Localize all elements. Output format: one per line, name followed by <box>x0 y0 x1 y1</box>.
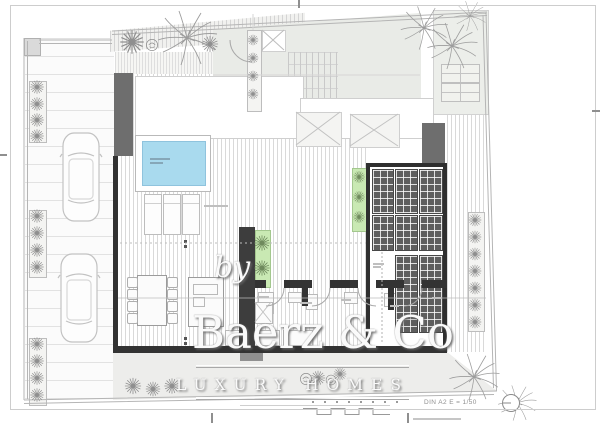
interior-wall <box>376 280 404 288</box>
interior-wall <box>330 280 358 288</box>
pergola-label <box>373 263 384 265</box>
fold-mark <box>592 110 600 112</box>
planter-box <box>468 212 485 332</box>
deck-label <box>204 205 228 207</box>
dining-chair <box>167 313 178 324</box>
scale-tick <box>312 401 398 403</box>
scale-label: DIN A2 E = 1/50 <box>424 399 514 406</box>
room-label <box>300 302 312 304</box>
room-label <box>257 296 269 298</box>
sun-lounger <box>144 194 162 235</box>
dining-chair <box>127 301 138 312</box>
garden-wall <box>114 73 133 156</box>
interior-wall <box>255 280 266 288</box>
floor-socket <box>184 342 187 345</box>
interior-wall <box>284 280 312 288</box>
watermark-rule <box>196 397 409 400</box>
kitchen-counter <box>252 330 280 346</box>
floor-socket <box>184 245 187 248</box>
planter-box <box>29 338 47 406</box>
pergola-louvre-panel <box>395 215 418 251</box>
dining-table <box>137 275 167 326</box>
vent-grate <box>441 83 480 102</box>
daybed <box>296 112 342 147</box>
floor-socket <box>184 240 187 243</box>
roof-overhang-left <box>135 76 304 139</box>
pergola-louvre-panel <box>372 215 394 251</box>
rear-wall <box>113 346 447 353</box>
planter-box <box>29 81 47 143</box>
room-label <box>432 297 442 299</box>
gate-pillar <box>24 38 41 56</box>
shower <box>255 302 273 324</box>
pergola-louvre-panel <box>395 255 418 333</box>
fold-mark <box>407 413 409 423</box>
deck-edge-wall <box>113 156 118 352</box>
dining-chair <box>127 289 138 300</box>
interior-wall <box>239 227 255 346</box>
kitchen-counter <box>283 330 313 346</box>
pool-label <box>150 158 170 160</box>
pergola-label <box>373 266 381 268</box>
vent-grate <box>441 64 480 83</box>
bath-fixture <box>344 292 358 304</box>
dining-chair <box>127 313 138 324</box>
floor-plan-sheet: by Baerz & Co LUXURY HOMES DIN A2 E = 1/… <box>0 0 600 424</box>
titleblock-note <box>413 418 461 420</box>
graphic-scale-bar <box>303 409 390 415</box>
pergola-louvre-panel <box>372 169 394 214</box>
paver-path <box>115 52 213 74</box>
pergola-louvre-panel <box>419 169 443 214</box>
kitchen-hob <box>193 297 205 307</box>
fold-mark <box>0 154 7 156</box>
dining-chair <box>167 301 178 312</box>
dining-chair <box>167 289 178 300</box>
chimney-wall <box>422 123 445 163</box>
kitchen-sink <box>193 284 218 295</box>
floor-socket <box>184 337 187 340</box>
dining-chair <box>127 277 138 288</box>
fold-mark <box>298 0 300 8</box>
sun-lounger <box>163 194 181 235</box>
skylight <box>262 30 286 52</box>
fold-mark <box>211 413 213 423</box>
pool-label <box>150 162 163 164</box>
dining-chair <box>167 277 178 288</box>
watermark-rule <box>196 365 409 368</box>
daybed <box>350 114 400 148</box>
pergola-louvre-panel <box>395 169 418 214</box>
garden-strip <box>113 352 497 402</box>
room-label <box>341 299 351 301</box>
pergola-louvre-panel <box>419 215 443 251</box>
planter-box <box>247 30 262 112</box>
pergola-louvre-panel <box>419 255 443 333</box>
room-label <box>390 305 399 307</box>
sun-lounger <box>182 194 200 235</box>
exterior-step <box>240 353 263 361</box>
interior-wall <box>422 280 447 288</box>
planter-box <box>29 210 47 278</box>
